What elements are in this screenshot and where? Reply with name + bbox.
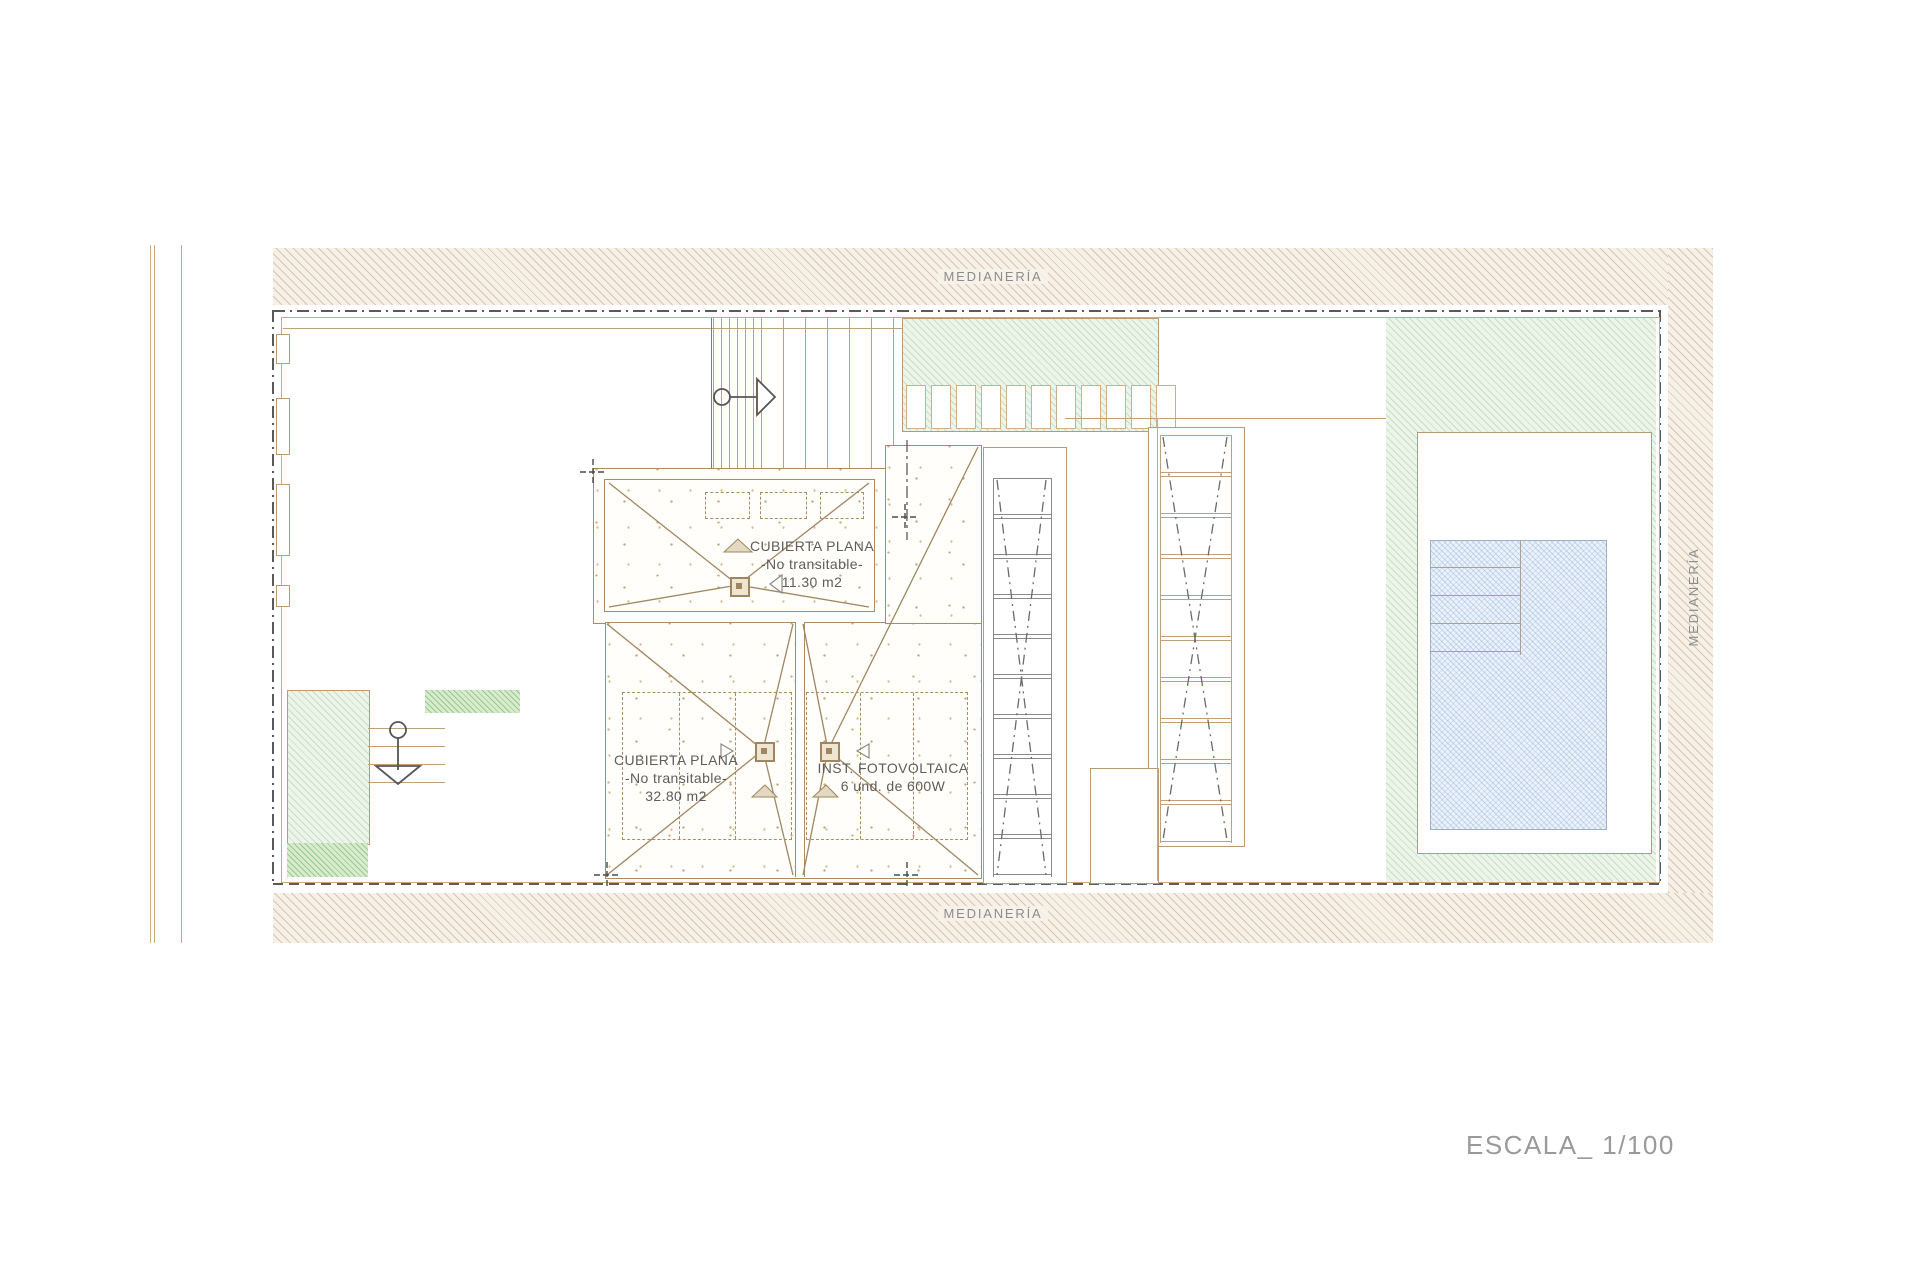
plot-boundary-bottom: [273, 883, 1660, 885]
slat: [1031, 385, 1051, 429]
planter-strip: [425, 690, 520, 713]
party-wall-label-right: MEDIANERÍA: [1685, 527, 1699, 667]
plot-boundary-top: [273, 310, 1660, 312]
utility-block: [1090, 768, 1159, 884]
pool-step: [1430, 568, 1520, 596]
roof-divider-wall: [795, 622, 805, 877]
wall-segment: [276, 585, 290, 607]
stair-edge-line: [711, 318, 712, 468]
pool-steps: [1430, 540, 1521, 655]
terrace-edge-line: [1157, 418, 1158, 881]
skylight-slats: [906, 385, 1176, 429]
slat: [1081, 385, 1101, 429]
pool-step: [1430, 596, 1520, 624]
skylight-box: [820, 492, 864, 519]
patio-stair: [368, 728, 445, 785]
roof-lower-left-label: CUBIERTA PLANA -No transitable- 32.80 m2: [566, 752, 786, 806]
slat: [1156, 385, 1176, 429]
terrace-edge-line: [1065, 418, 1386, 419]
stair-treads-top-a: [713, 318, 761, 468]
roof-plan-canvas: MEDIANERÍA MEDIANERÍA MEDIANERÍA: [0, 0, 1920, 1280]
wall-segment: [276, 484, 290, 556]
patio-green: [287, 690, 370, 845]
slat: [931, 385, 951, 429]
plot-boundary-left: [272, 310, 274, 885]
stairwell-2-treads: [1160, 435, 1232, 843]
slat: [906, 385, 926, 429]
solar-install-label: INST. FOTOVOLTAICA 6 und. de 600W: [783, 760, 1003, 796]
pool-step: [1430, 624, 1520, 652]
street-edge-line: [181, 245, 182, 943]
roof-lower-arm: [885, 445, 982, 624]
slat: [956, 385, 976, 429]
slat: [981, 385, 1001, 429]
green-roof-top: [902, 318, 1159, 432]
skylight-box: [705, 492, 750, 519]
patio-green-dark: [287, 843, 368, 877]
party-wall-label-bottom: MEDIANERÍA: [938, 906, 1049, 921]
party-wall-label-bottom-wrap: MEDIANERÍA: [273, 898, 1713, 928]
slat: [1056, 385, 1076, 429]
skylight-box: [760, 492, 807, 519]
party-wall-label-top: MEDIANERÍA: [938, 269, 1049, 284]
party-wall-band-top: MEDIANERÍA: [273, 248, 1713, 305]
scale-label: ESCALA_ 1/100: [1466, 1130, 1675, 1161]
slat: [1131, 385, 1151, 429]
pool-step: [1430, 540, 1520, 568]
roof-upper-label: CUBIERTA PLANA -No transitable- 11.30 m2: [702, 538, 922, 592]
slat: [1106, 385, 1126, 429]
wall-segment: [276, 398, 290, 455]
slat: [1006, 385, 1026, 429]
street-edge-line: [154, 245, 155, 943]
street-edge-line: [150, 245, 151, 943]
wall-segment: [276, 334, 290, 364]
stairwell-1-treads: [993, 478, 1052, 877]
